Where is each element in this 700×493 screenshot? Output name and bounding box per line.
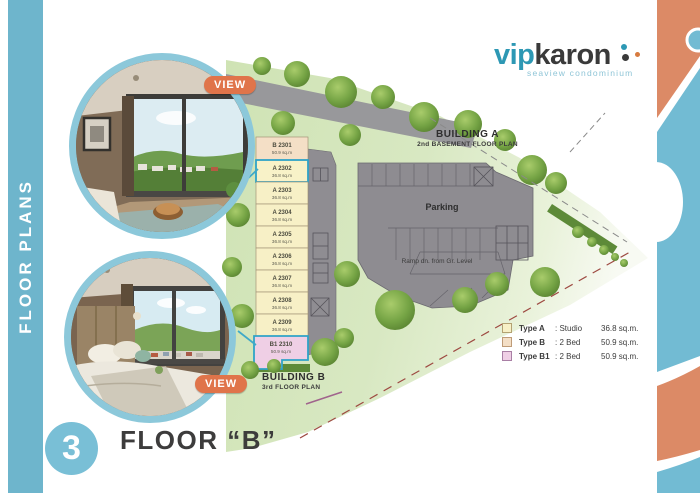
legend-area: 50.9 sq.m. bbox=[601, 352, 651, 361]
building-a-subtitle: 2nd BASEMENT FLOOR PLAN bbox=[395, 141, 540, 148]
svg-text:A 2307: A 2307 bbox=[272, 276, 292, 282]
building-b-title: BUILDING B bbox=[262, 372, 382, 383]
unit-cell: B 2301 50.9 sq.m bbox=[256, 137, 308, 160]
svg-text:36.8 sq.m: 36.8 sq.m bbox=[272, 283, 292, 288]
ramp-label: Ramp dn. from Gr. Level bbox=[402, 258, 473, 265]
unit-cell: A 2303 36.8 sq.m bbox=[256, 182, 308, 204]
unit-cell: A 2308 36.8 sq.m bbox=[256, 292, 308, 314]
logo-dot-teal-icon bbox=[621, 44, 627, 50]
building-b-corridor bbox=[308, 149, 336, 355]
building-a-label: BUILDING A 2nd BASEMENT FLOOR PLAN bbox=[395, 129, 540, 148]
svg-text:A 2306: A 2306 bbox=[272, 254, 292, 260]
legend-row-type-a: Type A : Studio 36.8 sq.m. bbox=[502, 321, 651, 335]
type-b1-swatch bbox=[502, 351, 512, 361]
svg-text:36.8 sq.m: 36.8 sq.m bbox=[272, 261, 292, 266]
legend-value: : Studio bbox=[555, 324, 601, 333]
unit-cell: A 2305 36.8 sq.m bbox=[256, 226, 308, 248]
unit-type-legend: Type A : Studio 36.8 sq.m. Type B : 2 Be… bbox=[502, 321, 651, 363]
unit-cell: A 2306 36.8 sq.m bbox=[256, 248, 308, 270]
legend-row-type-b: Type B : 2 Bed 50.9 sq.m. bbox=[502, 335, 651, 349]
building-a-title: BUILDING A bbox=[395, 129, 540, 140]
unit-cell: A 2304 36.8 sq.m bbox=[256, 204, 308, 226]
legend-row-type-b1: Type B1 : 2 Bed 50.9 sq.m. bbox=[502, 349, 651, 363]
building-b-subtitle: 3rd FLOOR PLAN bbox=[262, 384, 382, 391]
sidebar: FLOOR PLANS bbox=[8, 0, 43, 493]
legend-area: 36.8 sq.m. bbox=[601, 324, 651, 333]
decorative-wave-strip bbox=[655, 0, 700, 493]
svg-text:A 2304: A 2304 bbox=[272, 210, 292, 216]
unit-cell: A 2307 36.8 sq.m bbox=[256, 270, 308, 292]
svg-text:36.8 sq.m: 36.8 sq.m bbox=[272, 327, 292, 332]
floor-number-badge: 3 bbox=[45, 422, 98, 475]
logo-tagline: seaview condominium bbox=[527, 68, 654, 78]
svg-text:B1 2310: B1 2310 bbox=[270, 342, 293, 348]
unit-cell: A 2309 36.8 sq.m bbox=[256, 314, 308, 336]
logo-dot-dark-icon bbox=[622, 54, 629, 61]
svg-text:36.8 sq.m: 36.8 sq.m bbox=[272, 195, 292, 200]
svg-text:A 2303: A 2303 bbox=[272, 188, 292, 194]
svg-text:A 2305: A 2305 bbox=[272, 232, 292, 238]
svg-text:36.8 sq.m: 36.8 sq.m bbox=[272, 239, 292, 244]
legend-value: : 2 Bed bbox=[555, 352, 601, 361]
interior-photo-bedroom bbox=[64, 251, 236, 423]
svg-text:A 2309: A 2309 bbox=[272, 320, 292, 326]
view-badge-top[interactable]: VIEW bbox=[204, 76, 256, 94]
page-title: FLOOR “B” bbox=[120, 425, 277, 456]
svg-text:36.8 sq.m: 36.8 sq.m bbox=[272, 217, 292, 222]
logo-dot-orange-icon bbox=[635, 52, 640, 57]
legend-name: Type B bbox=[519, 338, 555, 347]
legend-area: 50.9 sq.m. bbox=[601, 338, 651, 347]
view-badge-bottom[interactable]: VIEW bbox=[195, 375, 247, 393]
type-a-swatch bbox=[502, 323, 512, 333]
svg-text:50.9 sq.m: 50.9 sq.m bbox=[271, 349, 291, 354]
svg-text:36.8 sq.m: 36.8 sq.m bbox=[272, 305, 292, 310]
svg-text:B 2301: B 2301 bbox=[272, 143, 292, 149]
legend-name: Type B1 bbox=[519, 352, 555, 361]
svg-text:50.9 sq.m: 50.9 sq.m bbox=[272, 150, 292, 155]
unit-cell-highlighted: A 2302 36.8 sq.m bbox=[256, 160, 308, 182]
building-b-label: BUILDING B 3rd FLOOR PLAN bbox=[262, 372, 382, 391]
brand-logo: vipkaron seaview condominium bbox=[494, 40, 654, 78]
logo-karon-text: karon bbox=[534, 39, 610, 71]
type-b-swatch bbox=[502, 337, 512, 347]
svg-text:36.8 sq.m: 36.8 sq.m bbox=[272, 173, 292, 178]
logo-vip-text: vip bbox=[494, 39, 534, 71]
sidebar-title: FLOOR PLANS bbox=[16, 179, 36, 334]
logo-wordmark: vipkaron bbox=[494, 40, 654, 70]
unit-list: B 2301 50.9 sq.m A 2302 36.8 sq.m A 2303… bbox=[254, 137, 308, 369]
svg-text:A 2308: A 2308 bbox=[272, 298, 292, 304]
legend-name: Type A bbox=[519, 324, 555, 333]
svg-text:A 2302: A 2302 bbox=[272, 166, 292, 172]
legend-value: : 2 Bed bbox=[555, 338, 601, 347]
page: Parking Ramp dn. from Gr. Level B 2301 5… bbox=[0, 0, 700, 493]
parking-label: Parking bbox=[425, 202, 458, 212]
